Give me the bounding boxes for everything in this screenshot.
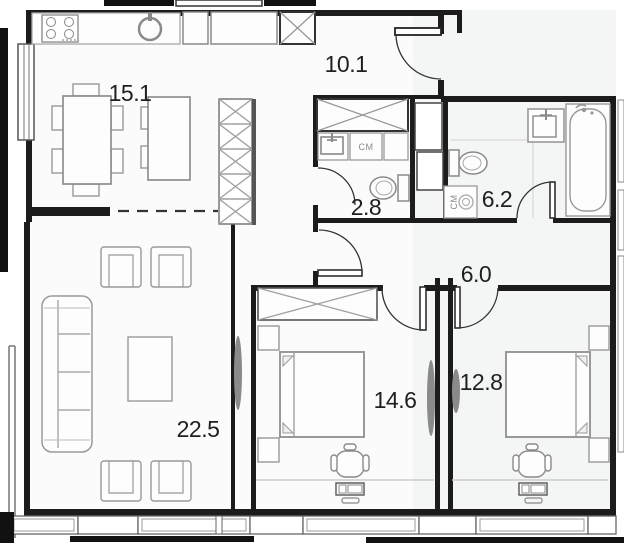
window-kitchen-left [18,44,34,140]
room-area-label: 22.5 [177,416,220,442]
fridge-icon [280,12,315,44]
wc-cabinet [384,133,408,160]
room-area-label: 15.1 [109,80,152,106]
tv-lens [234,336,242,410]
armchair [151,461,191,501]
room-area-label: 6.0 [461,261,491,287]
armchair [151,247,191,287]
armchair [101,461,141,501]
pillar [419,516,476,534]
exterior-bottom-edge [366,537,624,543]
nightstand [258,326,279,350]
nightstand [258,438,279,462]
floor-plan-page: 15.1 10.1 СМ 2.8 [0,0,624,543]
wc-washing-machine: СМ [350,133,382,160]
bathtub-icon [566,104,610,216]
wall-bedroom1-left [251,287,256,516]
corridor-door-leaf [318,270,362,276]
wall-left-upper [26,10,32,44]
sofa [42,296,92,452]
room-area-label: 14.6 [374,387,417,413]
dining-table-top [63,96,111,184]
nightstand [589,438,609,462]
exterior-bottom-corner [0,512,14,543]
bottom-windows [10,516,616,534]
exterior-top-wall-segment [264,0,316,6]
floor-plan-drawing: 15.1 10.1 СМ 2.8 [0,0,624,543]
bathroom-toilet-icon [449,150,487,176]
entrance-niche-wall [457,10,462,33]
wc-storage-x-box [317,99,408,131]
exterior-top-wall-segment [104,0,174,6]
neighbor-wall-strip [618,256,624,452]
room-area-label: 10.1 [325,51,368,77]
wall-bathroom-top [441,96,616,102]
wall-right [610,96,616,516]
bedroom1-door-leaf [420,287,426,330]
kitchen-island [141,97,190,180]
room-area-label: 6.2 [482,186,512,212]
duct-shaft [417,152,443,190]
dining-chair [111,106,123,130]
tv-lens [427,360,435,436]
washing-machine-label: СМ [449,195,459,210]
pillar [250,516,303,534]
stove-icon [42,15,78,42]
wall-kitchen-bottom-piece [26,207,110,216]
coffee-table [128,337,172,401]
island-top [148,97,190,180]
pillar [78,516,138,534]
exterior-bottom-edge [70,536,254,542]
duct-shaft [415,103,442,150]
wall-entrance-jamb-bottom [438,80,444,97]
exterior-wall-strip-left [0,28,8,272]
room-area-label: 12.8 [460,369,503,395]
exterior-top-shaft [176,0,262,6]
wall-between-bedrooms-left-face [435,278,440,516]
bedroom2-door-leaf [455,287,460,328]
dining-chair [111,149,123,173]
wall-bottom [24,509,616,516]
wall-corridor-stub-top [313,222,318,232]
window-mullion [216,516,222,534]
dining-chair [73,84,99,96]
nightstand [589,326,609,350]
kitchen-cabinet [183,12,208,44]
neighbor-wall-strip [618,100,624,182]
wall-left-living [24,222,30,516]
washing-machine-label: СМ [359,142,374,152]
wardrobe-kitchen [219,99,256,225]
wall-bedroom2-top [498,285,616,291]
armchair [101,247,141,287]
double-bed [280,352,364,437]
bathroom-washbasin-icon [528,109,564,142]
entrance-door-leaf [395,28,441,35]
bathroom-washing-machine: СМ [444,186,477,218]
room-area-label: 2.8 [351,194,381,220]
wardrobe-back-panel [252,99,256,225]
bathroom-door-leaf [550,182,555,218]
wall-bathroom-bottom-right [553,218,616,223]
wardrobe-x-bedroom1 [258,288,377,320]
wc-washbasin-icon [318,133,348,160]
dining-chair [73,184,99,196]
wall-bathroom-bottom-left [448,218,517,223]
double-bed [506,352,590,437]
pillar [588,516,616,534]
kitchen-cabinet [211,12,277,44]
neighbor-wall-strip [618,190,624,250]
